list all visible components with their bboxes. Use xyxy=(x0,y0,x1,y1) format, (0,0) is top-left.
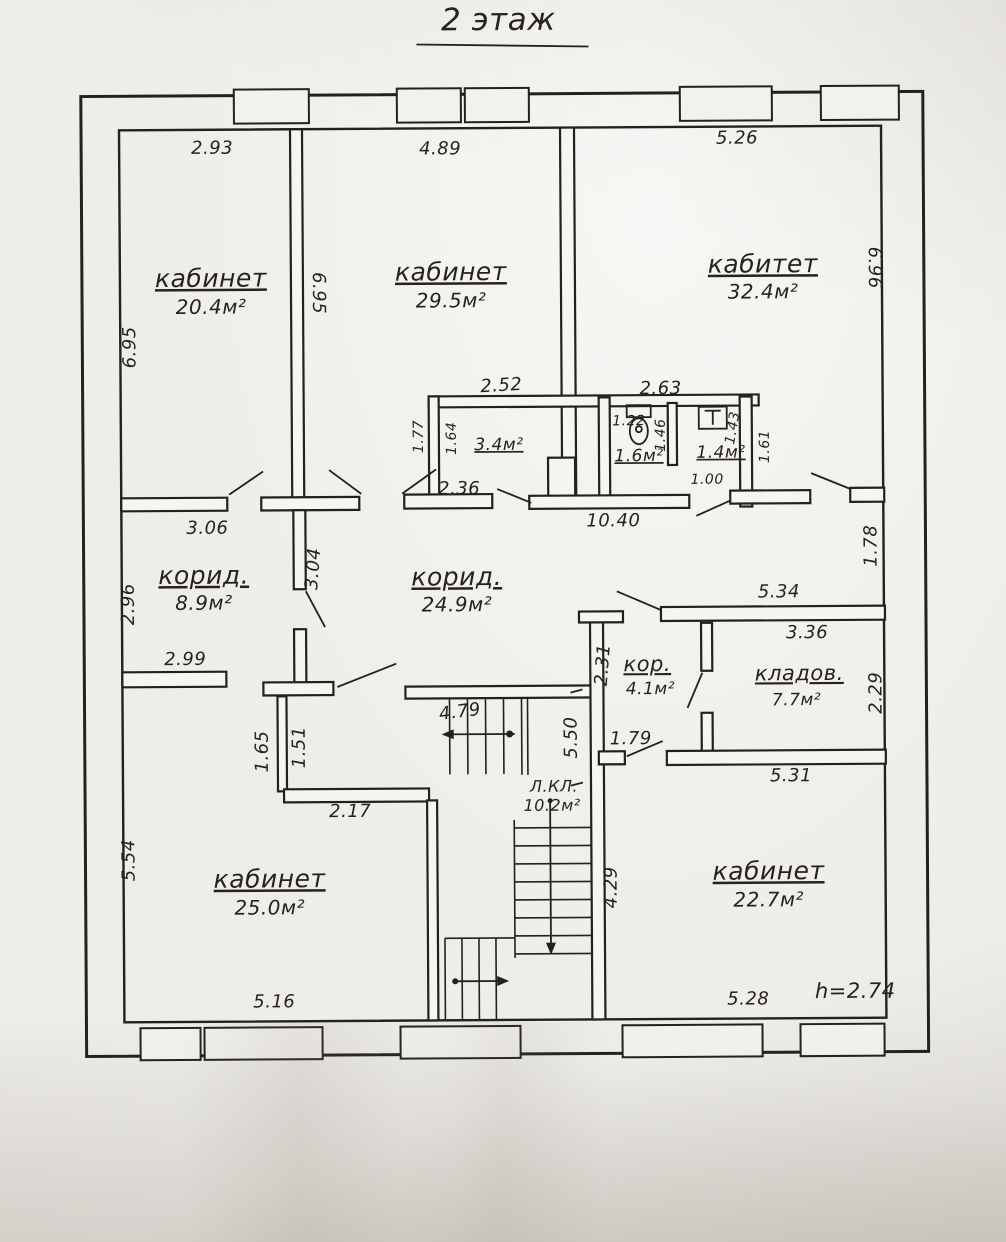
wall-segment xyxy=(263,682,333,695)
dim-stairs-top: 4.79 xyxy=(438,699,482,725)
room-area: 29.5м² xyxy=(416,288,487,312)
dim-recess-right: 1.51 xyxy=(289,726,310,768)
window-block xyxy=(400,1026,520,1059)
room-area-wc-sink: 1.4м² xyxy=(696,443,745,463)
room-label-office-top-mid: кабинет 29.5м² xyxy=(395,257,508,313)
dim-storage-right: 2.29 xyxy=(865,672,886,714)
dim-corridor-left-wall: 3.04 xyxy=(301,547,325,591)
window-block xyxy=(234,89,309,123)
room-area: 22.7м² xyxy=(733,887,804,911)
dim-wc-door: 1.00 xyxy=(691,472,724,488)
wall-segment xyxy=(294,629,306,689)
dim-top-mid-width: 4.89 xyxy=(419,138,461,159)
dim-storage-top-inner: 3.36 xyxy=(786,622,828,643)
window-block xyxy=(204,1027,322,1060)
room-label-office-top-left: кабинет 20.4м² xyxy=(155,263,268,319)
room-area-wc-lobby: 3.4м² xyxy=(474,435,523,455)
room-name: кабитет xyxy=(708,249,819,279)
room-label-corridor-main: корид. 24.9м² xyxy=(411,562,502,617)
door-swing xyxy=(811,473,850,489)
wall-segment xyxy=(599,397,611,507)
dim-wc-lobby-left-inner: 1.64 xyxy=(444,422,460,455)
dim-storage-bottom: 5.31 xyxy=(770,765,812,786)
room-name: кабинет xyxy=(713,856,826,886)
wall-segment xyxy=(702,713,713,753)
room-label-office-bottom-left: кабинет 25.0м² xyxy=(214,864,327,920)
dim-wc-lobby-left-outer: 1.77 xyxy=(411,420,427,453)
wall-segment xyxy=(668,403,677,465)
dim-wc-toilet-depth: 1.46 xyxy=(653,418,669,451)
door-swing xyxy=(306,591,325,627)
wall-segment xyxy=(730,490,810,503)
dim-stairs-length: 5.50 xyxy=(561,716,582,758)
door-swing xyxy=(337,664,396,687)
wall-segment xyxy=(121,498,227,512)
room-name: кладов. xyxy=(755,661,844,686)
window-block xyxy=(622,1024,762,1057)
dim-wc-lobby-bottom: 2.36 xyxy=(438,478,480,499)
wall-segment xyxy=(429,394,759,407)
door-swing xyxy=(497,489,531,503)
room-area: 20.4м² xyxy=(176,295,247,319)
room-name: кабинет xyxy=(214,864,327,894)
window-block xyxy=(800,1024,884,1057)
room-label-office-top-right: кабитет 32.4м² xyxy=(708,249,819,304)
wall-segment xyxy=(560,128,576,506)
dim-recess-bottom: 2.17 xyxy=(329,801,371,822)
dim-wc-toilet-width: 1.22 xyxy=(612,413,645,429)
room-label-stairwell: Л.КЛ. 10.2м² xyxy=(523,777,580,815)
wall-segment xyxy=(850,488,884,502)
wall-segment xyxy=(579,611,623,622)
room-name: кор. xyxy=(623,652,671,676)
door-swing xyxy=(687,673,702,708)
wall-segment xyxy=(599,751,625,764)
door-swing xyxy=(617,591,661,610)
dim-wc-right: 1.61 xyxy=(757,430,773,463)
window-block xyxy=(140,1028,200,1060)
wall-segment xyxy=(667,750,886,765)
dim-bottom-right-width: 5.28 xyxy=(727,988,769,1009)
window-block xyxy=(397,88,461,122)
room-label-office-bottom-right: кабинет 22.7м² xyxy=(713,856,826,912)
dim-corridor-small-height: 2.31 xyxy=(591,643,615,687)
dim-right-wall-height: 6.96 xyxy=(864,247,885,289)
room-area: 7.7м² xyxy=(772,690,821,710)
wall-segment xyxy=(122,672,226,688)
wall-segment xyxy=(261,497,359,511)
plan-title: 2 этаж xyxy=(441,2,556,39)
room-name: корид. xyxy=(411,562,502,592)
floor-plan-sheet: 2 этаж xyxy=(0,0,1006,1242)
dim-mid-wall-height: 6.95 xyxy=(308,272,329,314)
room-area: 10.2м² xyxy=(524,796,581,815)
wall-segment xyxy=(529,495,689,509)
wall-segment xyxy=(701,623,712,671)
room-area: 25.0м² xyxy=(234,895,305,919)
room-name: кабинет xyxy=(155,263,268,293)
sink-icon xyxy=(699,407,727,429)
wall-segment xyxy=(290,129,304,507)
window-block xyxy=(821,86,899,120)
title-underline xyxy=(416,43,588,47)
dim-wc-lobby-top: 2.52 xyxy=(480,374,523,397)
dim-corridor-left-side: 2.96 xyxy=(118,583,139,625)
dim-bottom-left-side: 5.54 xyxy=(118,839,139,881)
dim-top-left-width: 2.93 xyxy=(191,138,233,159)
room-name: кабинет xyxy=(395,257,508,287)
window-block xyxy=(680,86,772,121)
wall-segment xyxy=(661,606,885,621)
dim-corridor-left-bottom: 2.99 xyxy=(164,649,206,670)
room-label-corridor-small: кор. 4.1м² xyxy=(623,652,675,699)
dim-right-wall-mid: 1.78 xyxy=(860,525,881,567)
room-area: 32.4м² xyxy=(728,279,799,303)
dim-stairs-side: 4.29 xyxy=(601,866,622,908)
dim-storage-top-outer: 5.34 xyxy=(758,581,800,602)
dim-top-right-width: 5.26 xyxy=(716,127,758,148)
room-area: 24.9м² xyxy=(422,592,493,616)
note-ceiling-height: h=2.74 xyxy=(815,979,896,1003)
dim-left-wall-height: 6.95 xyxy=(119,326,140,368)
dim-recess-left: 1.65 xyxy=(252,730,273,772)
room-name: Л.КЛ. xyxy=(529,777,578,796)
floor-plan-drawing: 2 этаж xyxy=(0,0,1006,1242)
room-name: корид. xyxy=(158,561,249,591)
room-label-storage: кладов. 7.7м² xyxy=(755,661,844,711)
dim-corridor-left-top: 3.06 xyxy=(186,518,228,539)
window-block xyxy=(465,88,529,122)
room-area: 8.9м² xyxy=(175,591,233,615)
wall-segment xyxy=(427,800,438,1020)
door-swing xyxy=(229,471,263,494)
dim-corridor-main-bottom: 10.40 xyxy=(586,510,640,531)
wall-segment xyxy=(277,696,287,791)
room-area: 4.1м² xyxy=(626,679,675,699)
dim-bottom-left-width: 5.16 xyxy=(253,991,295,1012)
door-swing xyxy=(329,470,361,494)
dim-corridor-small-door: 1.79 xyxy=(610,728,652,749)
door-swing xyxy=(696,501,730,516)
room-label-corridor-left: корид. 8.9м² xyxy=(158,561,249,616)
dim-wc-top: 2.63 xyxy=(639,378,681,399)
